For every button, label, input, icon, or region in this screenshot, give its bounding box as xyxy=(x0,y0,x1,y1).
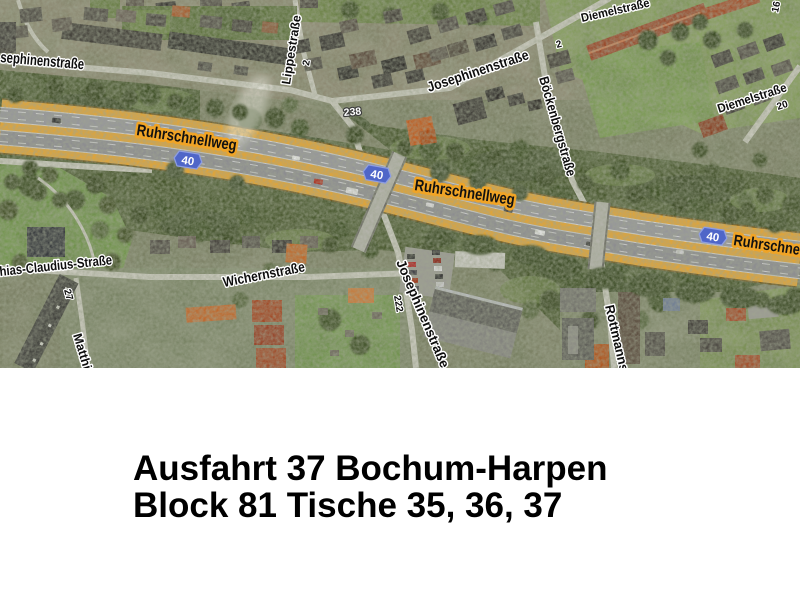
svg-text:238: 238 xyxy=(343,105,362,118)
svg-text:40: 40 xyxy=(181,155,196,169)
svg-text:40: 40 xyxy=(705,231,720,245)
svg-text:40: 40 xyxy=(369,168,384,182)
